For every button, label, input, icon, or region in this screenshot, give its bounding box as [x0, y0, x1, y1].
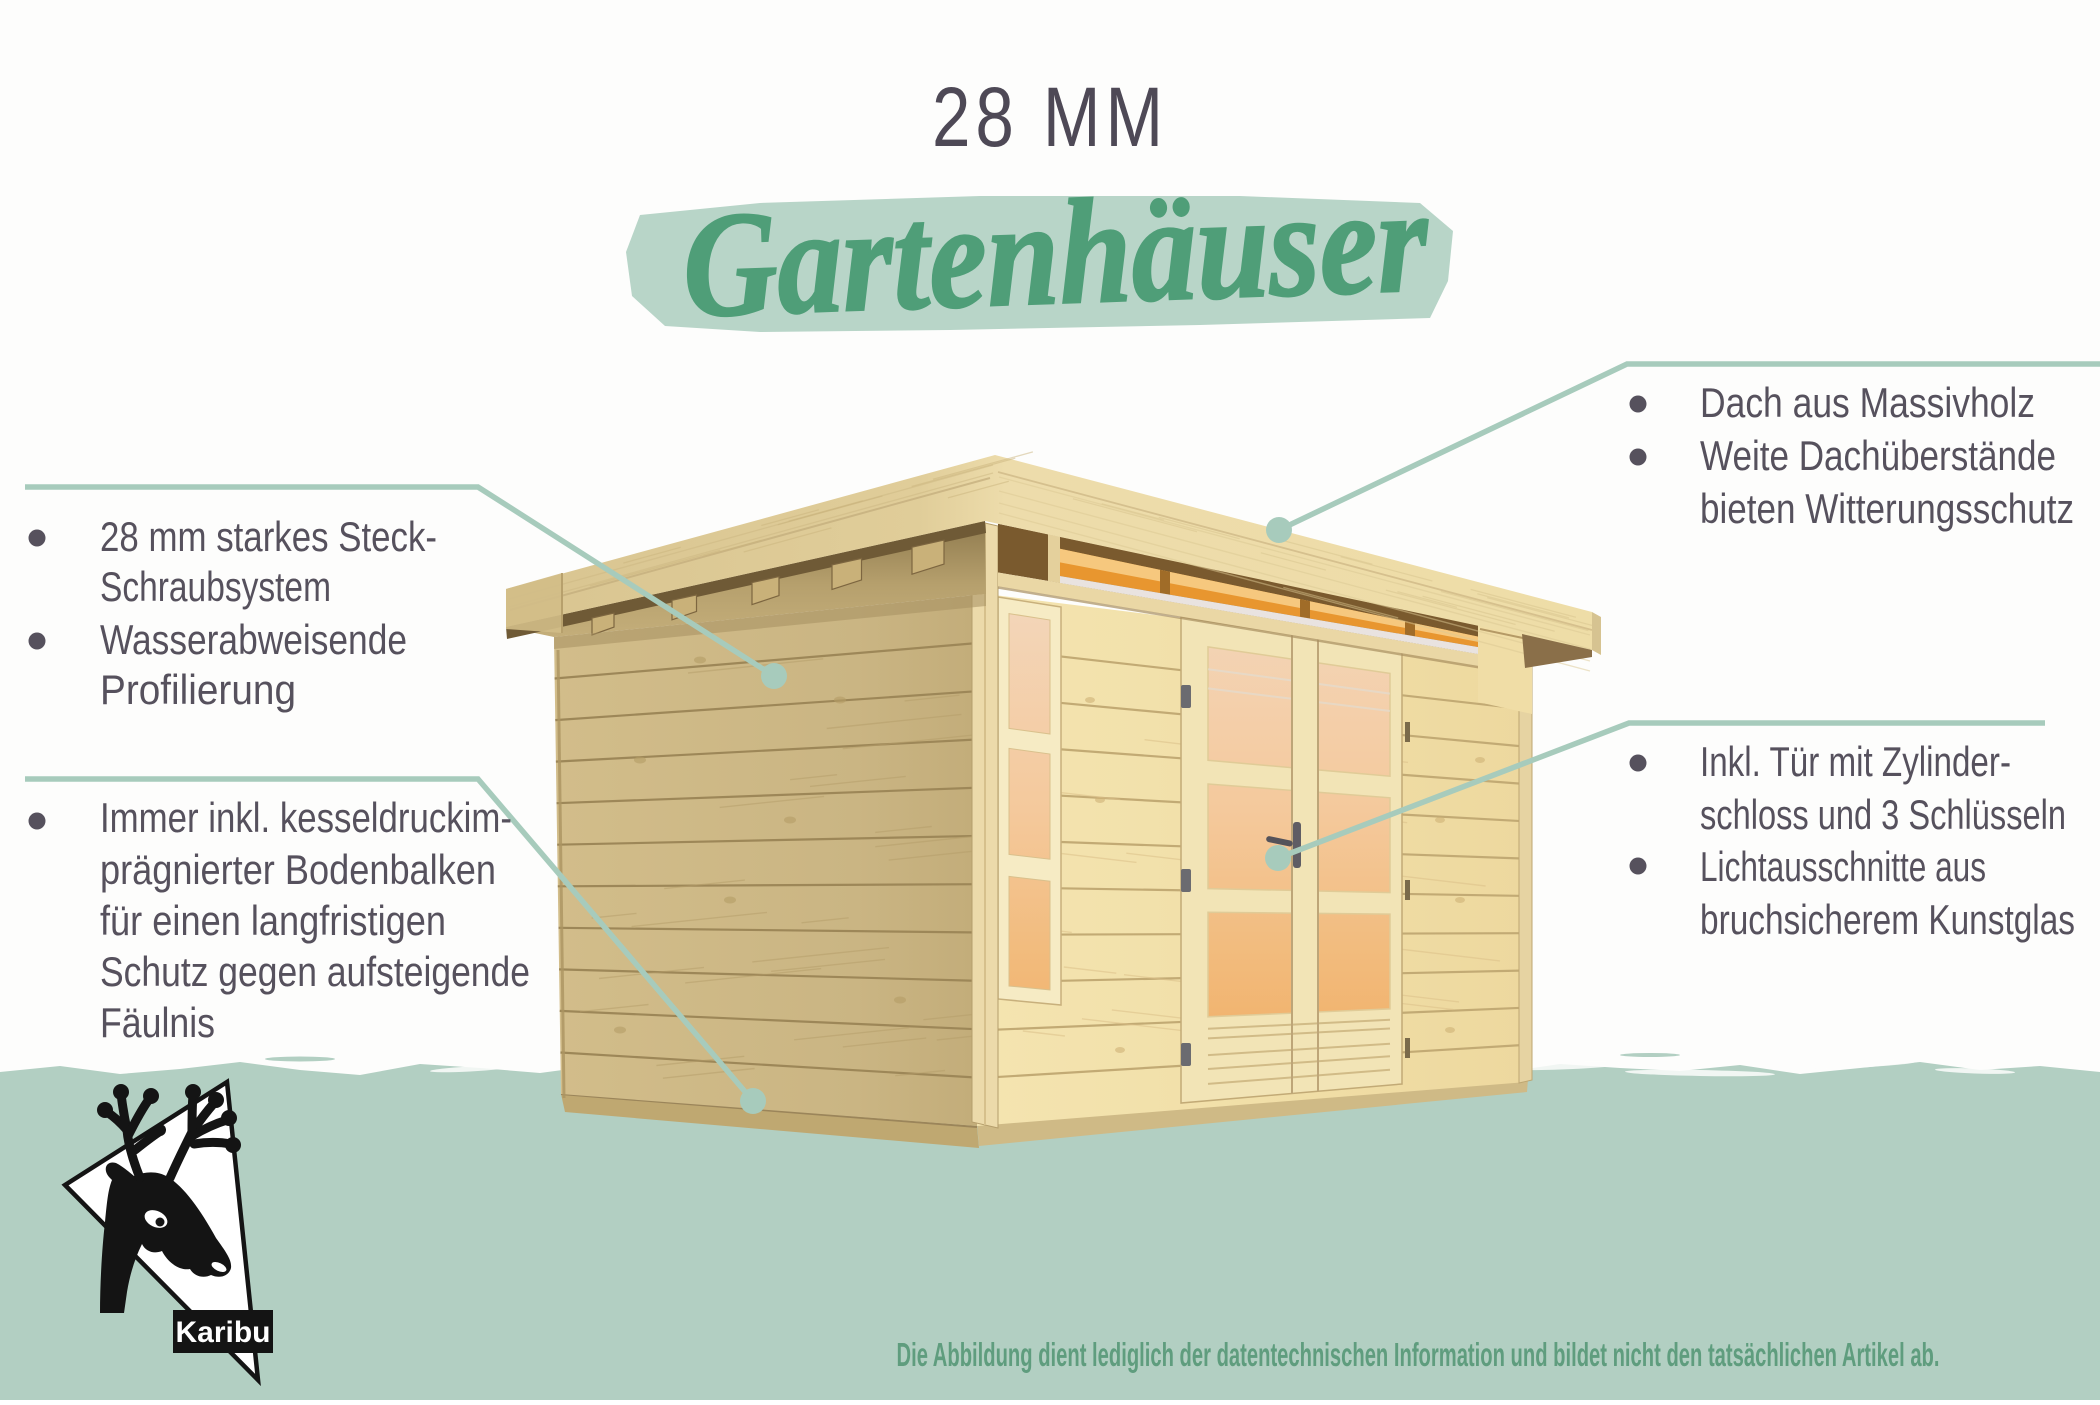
svg-text:bruchsicherem Kunstglas: bruchsicherem Kunstglas [1700, 896, 2075, 943]
svg-text:Karibu: Karibu [175, 1316, 270, 1349]
svg-text:28 MM: 28 MM [932, 70, 1168, 164]
svg-text:Fäulnis: Fäulnis [100, 999, 215, 1046]
svg-text:Immer inkl. kesseldruckim-: Immer inkl. kesseldruckim- [100, 794, 512, 841]
svg-text:Die Abbildung dient lediglich: Die Abbildung dient lediglich der datent… [897, 1336, 1940, 1373]
svg-text:Dach aus Massivholz: Dach aus Massivholz [1700, 379, 2035, 426]
svg-text:Lichtausschnitte aus: Lichtausschnitte aus [1700, 843, 1986, 890]
svg-text:Wasserabweisende: Wasserabweisende [100, 616, 407, 663]
svg-text:Schutz gegen aufsteigende: Schutz gegen aufsteigende [100, 948, 530, 995]
svg-text:Weite Dachüberstände: Weite Dachüberstände [1700, 432, 2056, 479]
svg-text:schloss und 3 Schlüsseln: schloss und 3 Schlüsseln [1700, 791, 2066, 838]
svg-text:Schraubsystem: Schraubsystem [100, 563, 331, 610]
svg-text:Gartenhäuser: Gartenhäuser [680, 157, 1432, 349]
svg-text:für einen langfristigen: für einen langfristigen [100, 897, 446, 944]
svg-text:Inkl. Tür mit Zylinder-: Inkl. Tür mit Zylinder- [1700, 738, 2011, 785]
svg-text:Profilierung: Profilierung [100, 666, 296, 713]
svg-text:bieten Witterungsschutz: bieten Witterungsschutz [1700, 485, 2074, 532]
svg-text:prägnierter Bodenbalken: prägnierter Bodenbalken [100, 846, 496, 893]
svg-text:28 mm starkes Steck-: 28 mm starkes Steck- [100, 513, 437, 560]
